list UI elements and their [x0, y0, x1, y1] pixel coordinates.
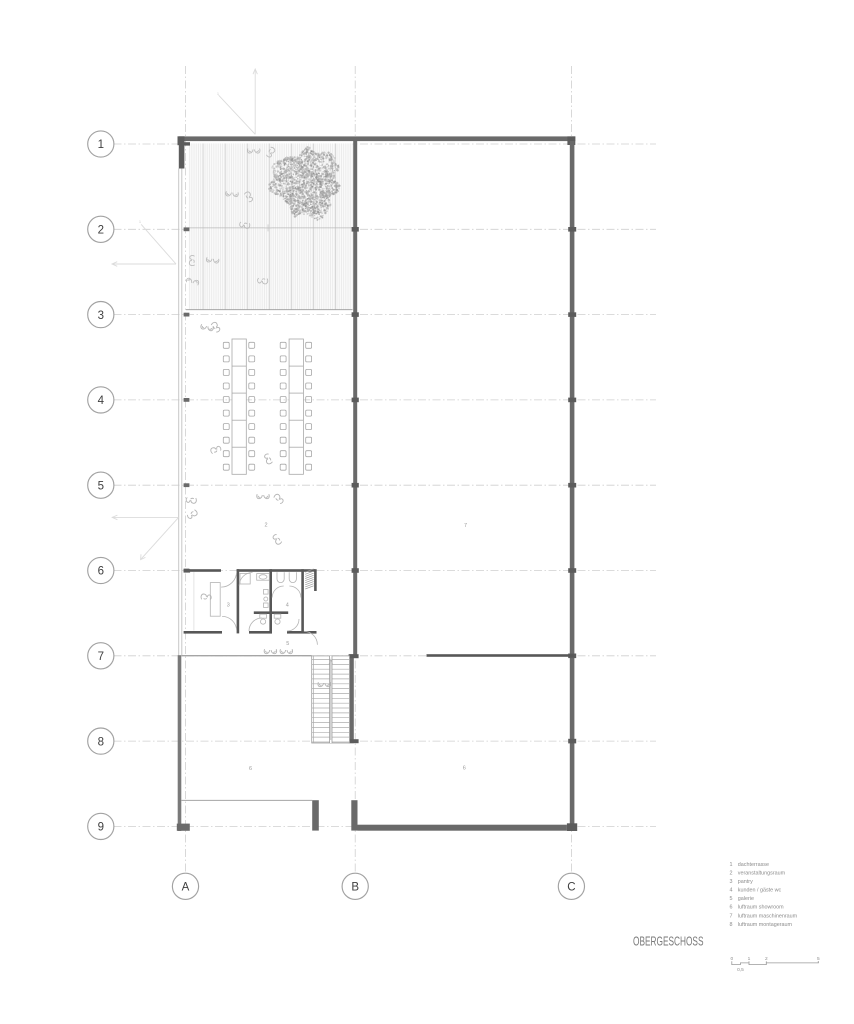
svg-text:7: 7	[98, 651, 104, 663]
svg-text:3: 3	[98, 310, 104, 322]
svg-text:2: 2	[98, 225, 104, 237]
svg-text:luftraum montageraum: luftraum montageraum	[738, 922, 793, 928]
svg-text:6: 6	[249, 766, 252, 772]
svg-text:7: 7	[730, 913, 733, 919]
svg-text:pantry: pantry	[738, 879, 753, 885]
svg-text:4: 4	[286, 603, 289, 609]
svg-text:2: 2	[730, 871, 733, 877]
svg-text:6: 6	[730, 905, 733, 911]
svg-text:3: 3	[730, 879, 733, 885]
svg-text:1: 1	[139, 220, 141, 224]
svg-text:4: 4	[730, 888, 733, 894]
svg-text:luftraum maschinenraum: luftraum maschinenraum	[738, 913, 798, 919]
svg-text:kunden / gäste wc: kunden / gäste wc	[738, 888, 782, 894]
svg-text:2: 2	[765, 956, 768, 962]
svg-text:2: 2	[264, 523, 267, 529]
svg-text:3: 3	[227, 603, 230, 609]
svg-text:8: 8	[730, 922, 733, 928]
svg-text:B: B	[351, 882, 359, 894]
svg-text:1: 1	[748, 956, 751, 962]
svg-text:8: 8	[98, 736, 104, 748]
svg-text:1: 1	[98, 139, 104, 151]
svg-text:C: C	[567, 882, 575, 894]
svg-text:9: 9	[98, 822, 104, 834]
svg-text:dachterrasse: dachterrasse	[738, 862, 769, 868]
svg-text:A: A	[182, 882, 190, 894]
svg-text:6: 6	[98, 566, 104, 578]
svg-text:5: 5	[730, 896, 733, 902]
svg-text:0: 0	[730, 956, 733, 962]
svg-text:5: 5	[98, 480, 104, 492]
svg-text:7: 7	[464, 523, 467, 529]
svg-text:5: 5	[286, 641, 289, 647]
svg-text:4: 4	[98, 395, 105, 407]
svg-text:6: 6	[463, 765, 466, 771]
svg-text:5: 5	[817, 956, 820, 962]
svg-text:luftraum showroom: luftraum showroom	[738, 905, 784, 911]
svg-text:veranstaltungsraum: veranstaltungsraum	[738, 871, 786, 877]
svg-text:OBERGESCHOSS: OBERGESCHOSS	[633, 934, 704, 949]
svg-text:1: 1	[730, 862, 733, 868]
svg-text:galerie: galerie	[738, 896, 754, 902]
svg-text:1: 1	[217, 92, 219, 96]
svg-text:0,5: 0,5	[737, 967, 744, 973]
